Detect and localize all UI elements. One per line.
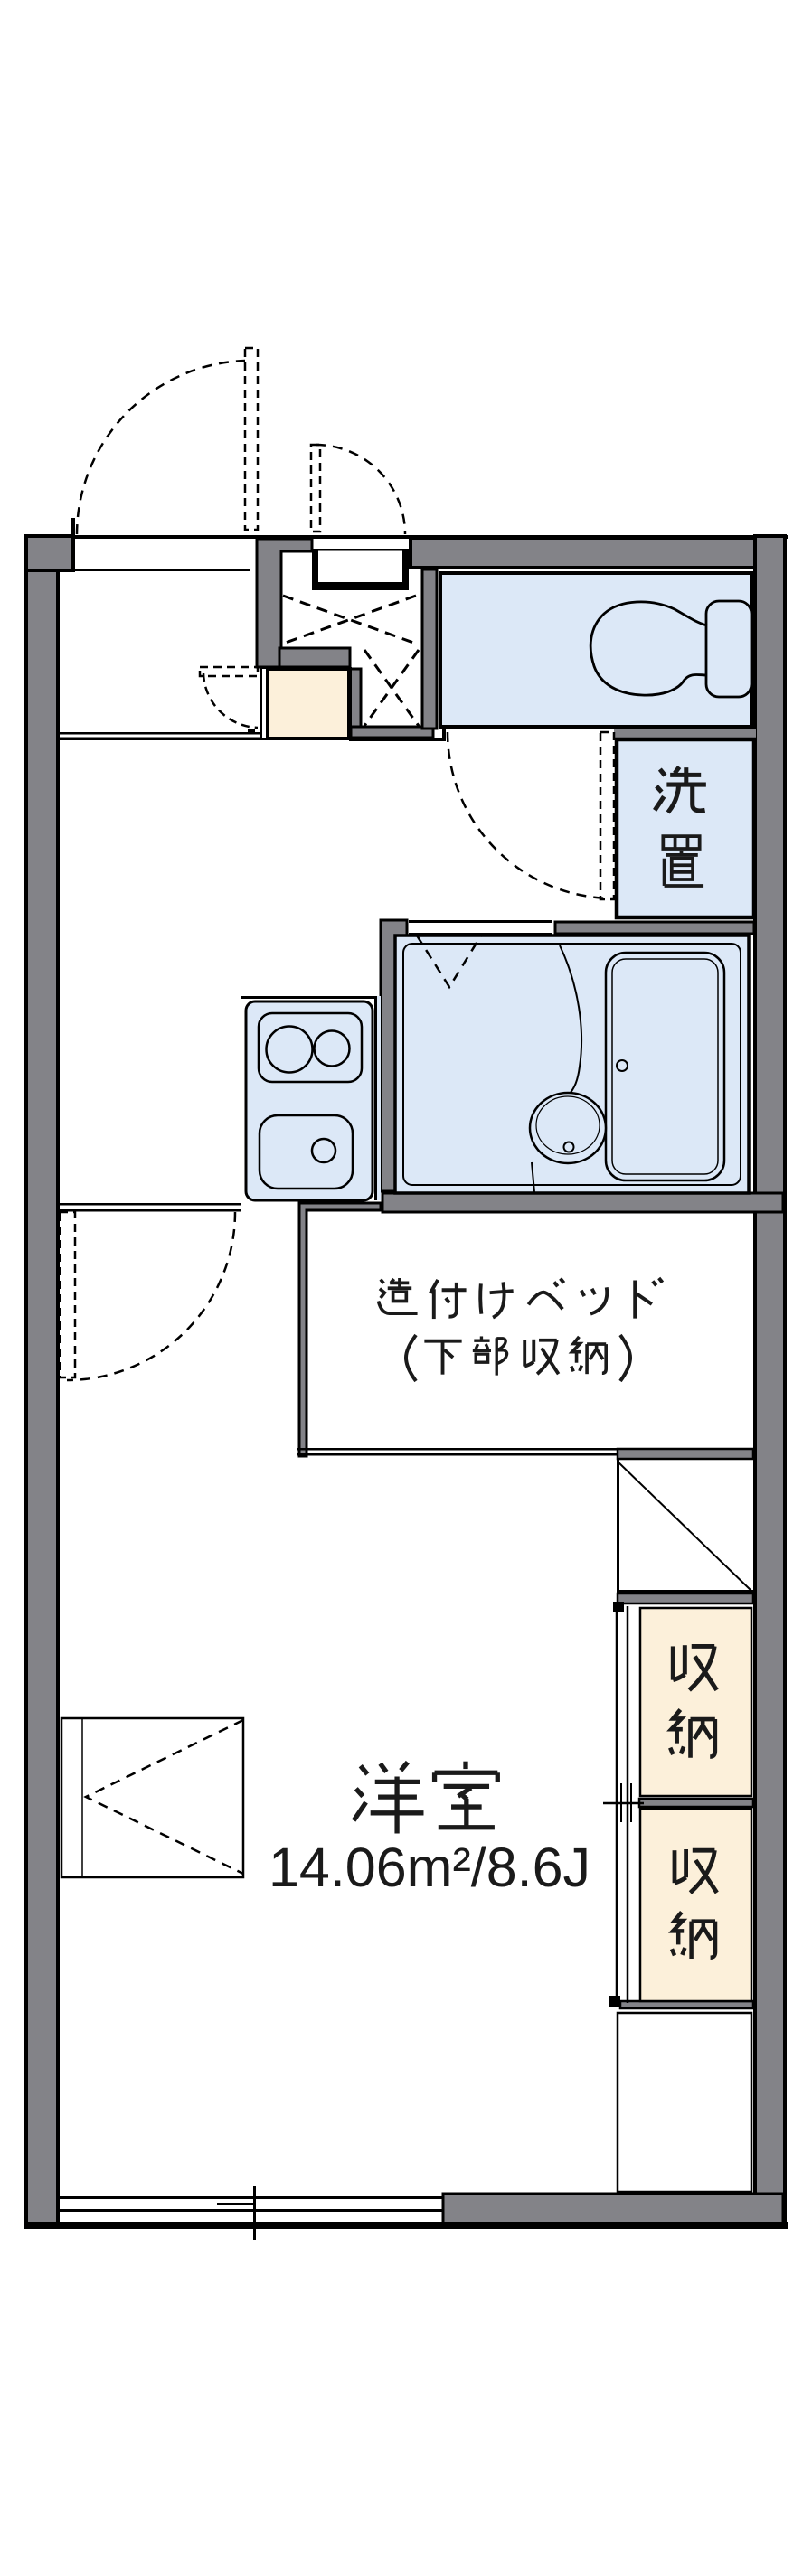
- svg-text:14.06m²/8.6J: 14.06m²/8.6J: [269, 1837, 590, 1898]
